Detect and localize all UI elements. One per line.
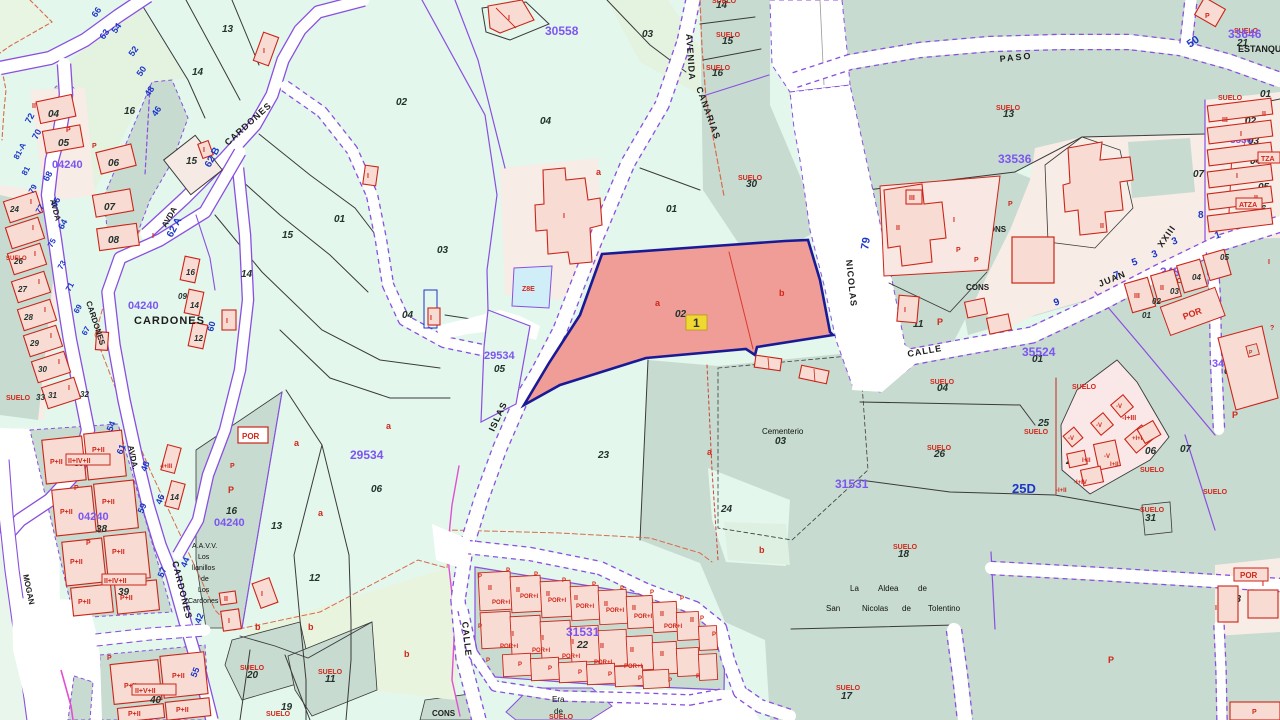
svg-text:40: 40 (149, 695, 162, 706)
svg-text:06: 06 (371, 484, 383, 495)
svg-text:29534: 29534 (350, 448, 384, 462)
svg-text:22: 22 (576, 640, 589, 651)
svg-text:ESTANQU: ESTANQU (1238, 44, 1280, 54)
svg-text:31: 31 (48, 391, 57, 400)
svg-text:01: 01 (1142, 311, 1151, 320)
svg-text:POR+I: POR+I (664, 624, 683, 630)
svg-text:14: 14 (170, 493, 179, 502)
svg-text:29534: 29534 (484, 350, 515, 362)
svg-text:07: 07 (1193, 169, 1205, 180)
svg-text:04: 04 (1192, 273, 1201, 282)
svg-text:II: II (1160, 285, 1164, 292)
svg-text:I: I (261, 591, 263, 598)
svg-text:-V: -V (1116, 404, 1122, 410)
svg-text:POR+I: POR+I (634, 614, 653, 620)
svg-text:04240: 04240 (128, 300, 159, 312)
svg-text:I: I (38, 279, 40, 286)
svg-text:02: 02 (675, 309, 687, 320)
svg-text:12: 12 (309, 573, 321, 584)
svg-text:31: 31 (1145, 513, 1157, 524)
svg-text:Aldea: Aldea (878, 584, 899, 593)
svg-text:-V: -V (1104, 454, 1110, 460)
svg-text:-V: -V (1068, 436, 1074, 442)
svg-text:P: P (1108, 655, 1114, 665)
svg-text:II: II (630, 647, 634, 654)
svg-text:8: 8 (1198, 210, 1204, 221)
svg-text:01: 01 (666, 204, 678, 215)
svg-text:de: de (554, 707, 563, 716)
svg-text:?: ? (1270, 325, 1274, 332)
svg-text:31531: 31531 (835, 477, 869, 491)
svg-text:POR+I: POR+I (594, 660, 613, 666)
svg-text:04240: 04240 (214, 517, 245, 529)
svg-text:05: 05 (494, 364, 506, 375)
svg-text:SUELO: SUELO (996, 105, 1021, 112)
svg-text:P: P (608, 672, 612, 678)
svg-text:SUELO: SUELO (266, 711, 291, 718)
svg-text:-I+III: -I+III (160, 464, 173, 470)
svg-text:-I+III: -I+III (1122, 415, 1136, 422)
svg-text:17: 17 (841, 691, 853, 702)
svg-text:P: P (548, 666, 552, 672)
svg-text:de: de (902, 604, 911, 613)
svg-text:I: I (263, 48, 265, 55)
svg-text:I: I (508, 15, 510, 22)
svg-text:SUELO: SUELO (1140, 467, 1165, 474)
svg-text:II: II (540, 635, 544, 642)
svg-text:I: I (367, 173, 369, 180)
svg-text:07: 07 (1180, 444, 1192, 455)
svg-text:05: 05 (1220, 253, 1229, 262)
svg-text:II: II (690, 617, 694, 624)
svg-text:P: P (1008, 201, 1013, 208)
svg-text:04: 04 (402, 310, 414, 321)
svg-text:P: P (638, 676, 642, 682)
svg-text:16: 16 (226, 506, 238, 517)
svg-text:P: P (668, 678, 672, 684)
svg-text:14: 14 (190, 301, 199, 310)
svg-text:SUELO: SUELO (240, 665, 265, 672)
svg-text:24: 24 (9, 205, 19, 214)
svg-text:16: 16 (186, 268, 195, 277)
svg-text:I: I (563, 213, 565, 220)
svg-text:30: 30 (38, 365, 47, 374)
svg-text:b: b (308, 622, 314, 632)
svg-text:SUELO: SUELO (706, 65, 731, 72)
svg-text:SUELO: SUELO (6, 395, 31, 402)
svg-text:I: I (30, 199, 32, 206)
svg-text:P: P (107, 655, 112, 662)
svg-text:P: P (74, 485, 79, 492)
svg-text:12: 12 (194, 334, 203, 343)
svg-text:II: II (604, 601, 608, 608)
svg-text:24: 24 (720, 504, 733, 515)
svg-text:P: P (650, 590, 654, 596)
svg-text:P: P (1232, 410, 1238, 420)
svg-text:13: 13 (222, 24, 234, 35)
svg-text:I: I (226, 318, 228, 325)
svg-text:32: 32 (80, 390, 89, 399)
svg-text:-I+IV: -I+IV (1074, 480, 1087, 486)
svg-text:P: P (562, 578, 566, 584)
svg-text:P: P (92, 143, 97, 150)
svg-text:15: 15 (282, 230, 294, 241)
svg-text:b: b (779, 288, 785, 298)
svg-text:II: II (574, 595, 578, 602)
svg-text:25D: 25D (1012, 481, 1036, 496)
svg-text:II: II (1262, 111, 1266, 118)
svg-text:de: de (201, 576, 209, 583)
svg-text:de: de (918, 584, 927, 593)
svg-text:35524: 35524 (1022, 345, 1056, 359)
svg-text:b: b (759, 545, 765, 555)
svg-text:P: P (696, 674, 700, 680)
svg-text:POR+I: POR+I (500, 644, 519, 650)
svg-text:Z8E: Z8E (522, 286, 535, 293)
svg-text:II: II (510, 631, 514, 638)
svg-text:I: I (32, 225, 34, 232)
svg-text:I: I (44, 307, 46, 314)
svg-text:P: P (712, 632, 716, 638)
svg-text:I: I (34, 251, 36, 258)
svg-text:P: P (518, 662, 522, 668)
svg-text:SUELO: SUELO (716, 32, 741, 39)
svg-text:38: 38 (96, 524, 108, 535)
svg-text:06: 06 (108, 158, 120, 169)
svg-text:II: II (632, 605, 636, 612)
svg-text:Nicolas: Nicolas (862, 604, 888, 613)
svg-text:III: III (909, 195, 915, 202)
svg-text:P+II: P+II (60, 509, 73, 516)
svg-text:P: P (228, 485, 234, 495)
svg-text:15: 15 (186, 156, 198, 167)
svg-text:II: II (32, 103, 36, 110)
svg-text:P: P (506, 568, 510, 574)
svg-text:-V: -V (1096, 423, 1102, 429)
svg-text:POR+I: POR+I (606, 608, 625, 614)
svg-text:II: II (660, 651, 664, 658)
svg-text:POR+I: POR+I (492, 600, 511, 606)
svg-text:02: 02 (1152, 297, 1161, 306)
svg-text:P: P (1252, 709, 1257, 716)
svg-text:04: 04 (48, 109, 60, 120)
svg-text:33536: 33536 (998, 152, 1032, 166)
svg-text:POR+I: POR+I (624, 664, 643, 670)
svg-text:39: 39 (118, 587, 130, 598)
svg-text:I: I (152, 233, 154, 240)
svg-text:II+IV+II: II+IV+II (68, 458, 91, 465)
svg-text:33: 33 (36, 393, 45, 402)
svg-text:04240: 04240 (52, 159, 83, 171)
svg-text:P: P (937, 317, 943, 327)
svg-text:04240: 04240 (78, 511, 109, 523)
svg-text:ATZA: ATZA (1239, 202, 1257, 209)
svg-text:Los: Los (198, 587, 210, 594)
svg-text:I: I (228, 618, 230, 625)
svg-text:03: 03 (642, 29, 654, 40)
svg-text:16: 16 (124, 106, 136, 117)
svg-text:SUELO: SUELO (1140, 507, 1165, 514)
svg-text:II: II (896, 225, 900, 232)
svg-text:P: P (230, 463, 235, 470)
svg-text:I: I (68, 385, 70, 392)
svg-text:CARDONES: CARDONES (134, 315, 205, 327)
svg-text:III: III (1222, 117, 1228, 124)
svg-text:POR+I: POR+I (532, 648, 551, 654)
svg-text:La: La (850, 584, 859, 593)
svg-text:llanillos: llanillos (192, 565, 215, 572)
svg-text:P: P (700, 616, 704, 622)
svg-text:03: 03 (437, 245, 449, 256)
svg-text:TZA: TZA (1261, 156, 1275, 163)
svg-text:P: P (66, 127, 71, 134)
svg-text:II: II (1100, 223, 1104, 230)
svg-text:1: 1 (693, 316, 700, 330)
svg-text:SUELO: SUELO (1072, 384, 1097, 391)
svg-text:79: 79 (859, 236, 873, 250)
svg-text:09: 09 (178, 292, 187, 301)
svg-text:27: 27 (17, 285, 27, 294)
svg-text:P: P (578, 670, 582, 676)
svg-text:b: b (404, 649, 410, 659)
svg-text:P+II: P+II (102, 499, 115, 506)
svg-text:P: P (974, 257, 979, 264)
svg-text:SUELO: SUELO (712, 0, 737, 5)
svg-text:P+II: P+II (128, 711, 141, 718)
svg-text:07: 07 (104, 202, 116, 213)
svg-text:03: 03 (775, 436, 787, 447)
svg-text:I: I (1268, 259, 1270, 266)
svg-text:II: II (660, 611, 664, 618)
svg-text:POR+I: POR+I (548, 598, 567, 604)
svg-text:II: II (570, 639, 574, 646)
svg-text:I: I (58, 359, 60, 366)
svg-text:13: 13 (271, 521, 283, 532)
svg-text:P: P (1205, 13, 1210, 20)
svg-text:POR: POR (1240, 571, 1258, 580)
svg-text:28: 28 (23, 313, 33, 322)
svg-text:-I+II: -I+II (1056, 488, 1067, 494)
svg-text:SUELO: SUELO (1203, 489, 1228, 496)
svg-text:25: 25 (1037, 418, 1050, 429)
svg-text:P: P (486, 658, 490, 664)
svg-text:I: I (1236, 173, 1238, 180)
svg-text:P+II: P+II (112, 549, 125, 556)
svg-text:31531: 31531 (566, 625, 600, 639)
svg-text:30558: 30558 (545, 24, 579, 38)
svg-text:01: 01 (334, 214, 346, 225)
svg-text:SUELO: SUELO (927, 445, 952, 452)
svg-text:POR+I: POR+I (520, 594, 539, 600)
svg-text:P: P (478, 574, 482, 580)
svg-text:SUELO: SUELO (6, 256, 27, 262)
svg-text:II: II (516, 587, 520, 594)
svg-text:II+V+II: II+V+II (135, 688, 156, 695)
svg-text:Cementerio: Cementerio (762, 427, 804, 436)
svg-text:P: P (680, 596, 684, 602)
svg-text:I: I (1262, 581, 1264, 588)
svg-text:Era: Era (552, 695, 565, 704)
svg-text:Los: Los (198, 554, 210, 561)
svg-text:II+IV+II: II+IV+II (104, 578, 127, 585)
svg-text:Cardones: Cardones (188, 598, 219, 605)
svg-text:SUELO: SUELO (318, 669, 343, 676)
svg-text:03: 03 (1170, 287, 1179, 296)
svg-text:14: 14 (192, 67, 204, 78)
svg-text:P: P (956, 247, 961, 254)
svg-text:P: P (534, 572, 538, 578)
svg-text:POR+I: POR+I (562, 654, 581, 660)
svg-text:P+II: P+II (78, 599, 91, 606)
svg-text:I: I (430, 315, 432, 322)
svg-text:III: III (1134, 293, 1140, 300)
svg-text:+I+I: +I+I (1132, 436, 1143, 442)
svg-text:A.A.V.V.: A.A.V.V. (192, 543, 217, 550)
svg-text:POR+I: POR+I (576, 604, 595, 610)
svg-text:P+II: P+II (172, 673, 185, 680)
svg-text:P: P (478, 624, 482, 630)
svg-text:P+II: P+II (70, 559, 83, 566)
svg-text:I: I (953, 217, 955, 224)
svg-text:29: 29 (29, 339, 39, 348)
svg-text:P: P (620, 586, 624, 592)
svg-text:SUELO: SUELO (930, 379, 955, 386)
svg-text:SUELO: SUELO (1024, 429, 1049, 436)
svg-text:SUELO: SUELO (893, 544, 918, 551)
svg-text:SUELO: SUELO (1218, 95, 1243, 102)
svg-text:I: I (904, 307, 906, 314)
svg-text:I+II: I+II (1082, 458, 1091, 464)
svg-text:b: b (255, 622, 261, 632)
svg-text:08: 08 (108, 235, 120, 246)
svg-text:CONS: CONS (432, 709, 456, 718)
svg-text:Tolentino: Tolentino (928, 604, 961, 613)
svg-text:05: 05 (58, 138, 70, 149)
svg-text:04: 04 (540, 116, 552, 127)
svg-text:23: 23 (597, 450, 610, 461)
svg-text:P+II: P+II (50, 459, 63, 466)
svg-text:San: San (826, 604, 840, 613)
svg-text:P: P (86, 540, 91, 547)
svg-text:14: 14 (241, 269, 253, 280)
svg-text:33646: 33646 (1228, 27, 1262, 41)
svg-text:II: II (224, 596, 228, 603)
svg-text:I: I (1240, 131, 1242, 138)
svg-text:II: II (600, 643, 604, 650)
svg-text:I: I (50, 333, 52, 340)
svg-text:I+II: I+II (1110, 462, 1119, 468)
svg-text:POR: POR (242, 432, 260, 441)
svg-text:II: II (546, 591, 550, 598)
svg-text:P+II: P+II (176, 707, 189, 714)
svg-text:P+II: P+II (92, 447, 105, 454)
svg-text:I: I (203, 147, 205, 154)
svg-text:02: 02 (396, 97, 408, 108)
svg-text:SUELO: SUELO (738, 175, 763, 182)
svg-text:II: II (488, 585, 492, 592)
svg-text:P: P (592, 582, 596, 588)
svg-text:06: 06 (1145, 446, 1157, 457)
svg-text:II: II (1215, 605, 1219, 612)
